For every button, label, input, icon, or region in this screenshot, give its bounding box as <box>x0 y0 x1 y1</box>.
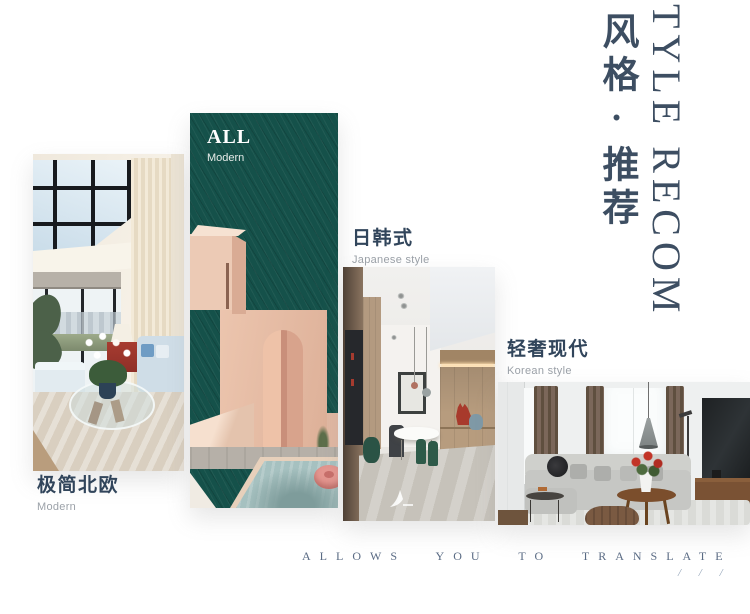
pendant-cord <box>426 327 427 389</box>
closet-hook <box>351 379 354 386</box>
label-japanese-cn: 日韩式 <box>352 229 430 250</box>
label-korean: 轻奢现代 Korean style <box>507 340 589 377</box>
table-leg <box>401 440 402 460</box>
green-chair <box>428 441 438 466</box>
cube-door-slit <box>226 263 229 309</box>
green-chair <box>416 439 426 464</box>
cube-top <box>190 225 246 236</box>
blue-dog-figurine <box>469 414 483 430</box>
sofa-pillow <box>570 464 587 479</box>
dining-table <box>394 427 439 440</box>
cube-side <box>232 234 246 314</box>
sofa-pillow <box>594 466 611 481</box>
ceiling-bulkhead <box>430 267 495 351</box>
left-wood-panel <box>363 297 381 449</box>
sofa-pillow <box>156 345 169 358</box>
white-partition <box>498 382 525 525</box>
green-pouf <box>363 437 380 463</box>
console-decor <box>712 470 721 478</box>
side-table <box>526 492 564 500</box>
label-nordic-cn: 极简北欧 <box>37 476 119 497</box>
style-card-korean[interactable] <box>498 382 750 525</box>
page-title-english: TYLE RECOM <box>646 4 686 318</box>
pool-float-hole <box>324 471 334 478</box>
upper-cabinet <box>440 350 495 364</box>
style-recommend-page: 极简北欧 Modern ALL Modern 日韩式 Japanese styl… <box>0 0 750 614</box>
coffee-table-leg <box>645 501 648 525</box>
dark-closet <box>345 330 365 445</box>
pendant-lamp-gray <box>422 388 431 397</box>
side-table-leg <box>558 500 559 522</box>
label-korean-en: Korean style <box>507 365 589 377</box>
ceiling-light <box>391 335 397 340</box>
side-table-leg <box>530 500 531 522</box>
badge-all-sub: Modern <box>207 152 244 164</box>
pendant-cord <box>414 327 415 383</box>
wood-floor <box>498 510 528 525</box>
ceiling-light <box>397 293 405 299</box>
umbrella-edge <box>190 465 216 508</box>
sofa-pillow <box>141 344 154 357</box>
designer-logo-watermark-icon <box>387 489 417 511</box>
label-japanese-en: Japanese style <box>352 254 430 266</box>
page-title-chinese: 风格·推荐 <box>598 12 635 231</box>
style-card-japanese[interactable] <box>343 267 495 521</box>
books <box>538 487 547 491</box>
tv-screen <box>702 398 750 478</box>
pendant-lamp-copper <box>411 382 418 389</box>
style-card-all[interactable]: ALL Modern <box>190 113 338 508</box>
badge-all: ALL <box>207 126 251 149</box>
cabinet-edge <box>440 427 495 429</box>
plant-pot <box>99 383 116 399</box>
roller-shade <box>33 272 121 289</box>
label-nordic: 极简北欧 Modern <box>37 476 119 513</box>
red-flowers <box>626 450 666 480</box>
upper-window <box>33 160 133 254</box>
footer-tagline: ALLOWS YOU TO TRANSLATE <box>302 549 732 564</box>
footer-slashes: / / / <box>678 567 729 579</box>
partition-seam <box>507 382 508 525</box>
label-japanese: 日韩式 Japanese style <box>352 229 430 266</box>
arch-doorway <box>263 330 303 453</box>
brown-pouf <box>585 506 639 525</box>
pendant-cord <box>648 382 649 420</box>
style-card-nordic[interactable] <box>33 154 184 471</box>
gramophone-decor <box>547 456 568 477</box>
label-nordic-en: Modern <box>37 501 119 513</box>
label-korean-cn: 轻奢现代 <box>507 340 589 361</box>
closet-hook <box>351 353 354 360</box>
ceiling-light <box>400 303 408 309</box>
pendant-lamp-rim <box>639 445 658 449</box>
